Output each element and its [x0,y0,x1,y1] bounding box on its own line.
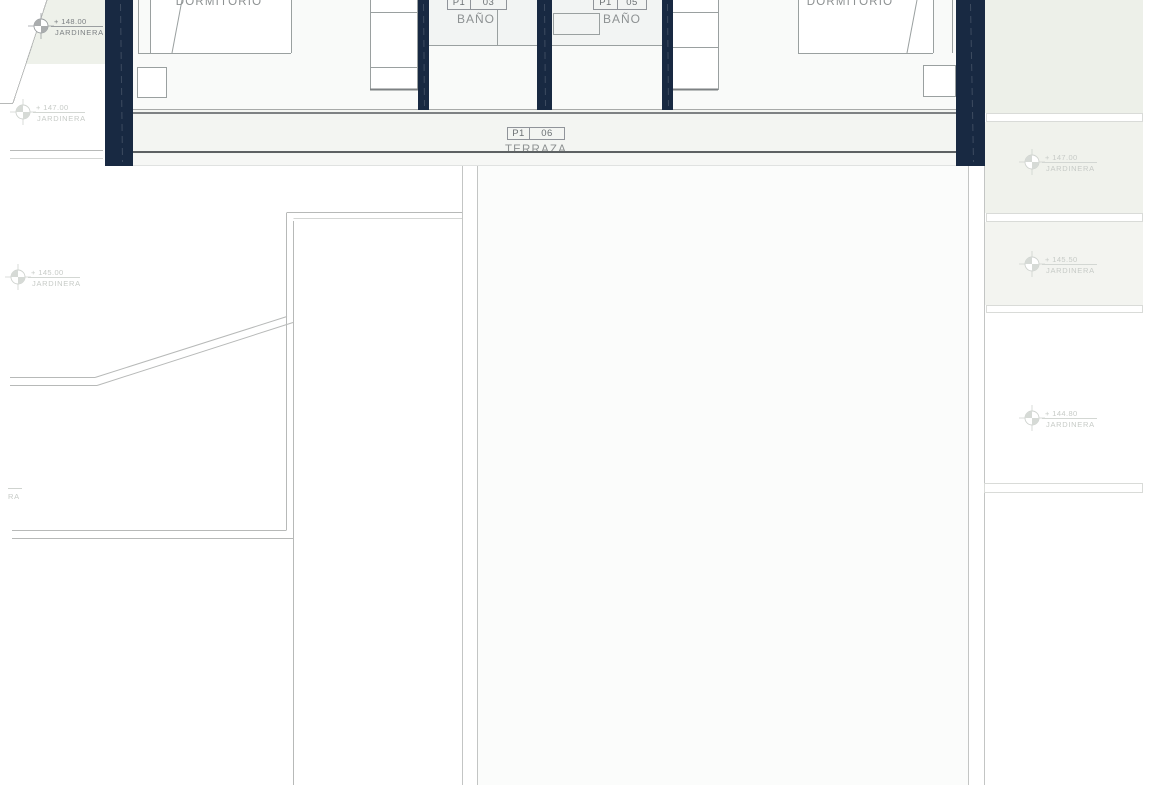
terrace-edge-line [133,151,956,153]
unit-tag-terraza: P1 06 [507,127,565,140]
tag-unit: P1 [448,0,471,9]
level-label: JARDINERA [37,114,86,123]
clipped-marker-rule [8,488,22,489]
level-label: JARDINERA [55,28,104,37]
room-label-bano-left: BAÑO [457,12,495,26]
tag-number: 03 [471,0,506,9]
level-label: JARDINERA [32,279,81,288]
level-value: + 144.80 [1045,409,1078,418]
room-label-bano-right: BAÑO [603,12,641,26]
level-label: JARDINERA [1046,266,1095,275]
level-value: + 145.50 [1045,255,1078,264]
level-value: + 147.00 [1045,153,1078,162]
clipped-marker-label: RA [8,492,20,501]
level-label: JARDINERA [1046,164,1095,173]
level-label: JARDINERA [1046,420,1095,429]
level-value: + 148.00 [54,17,87,26]
room-label-terraza: TERRAZA [505,144,567,156]
tag-number: 06 [530,128,564,139]
tag-unit: P1 [508,128,530,139]
tag-unit: P1 [594,0,618,9]
level-value: + 145.00 [31,268,64,277]
floor-plan: DORMITORIO DORMITORIO P1 03 BAÑO P1 05 B… [0,0,1170,785]
plan-labels: DORMITORIO DORMITORIO P1 03 BAÑO P1 05 B… [0,0,1170,785]
room-label-dormitorio-right: DORMITORIO [807,0,894,8]
level-value: + 147.00 [36,103,69,112]
unit-tag-bano-left: P1 03 [447,0,507,10]
room-label-dormitorio-left: DORMITORIO [176,0,263,8]
unit-tag-bano-right: P1 05 [593,0,647,10]
tag-number: 05 [618,0,646,9]
